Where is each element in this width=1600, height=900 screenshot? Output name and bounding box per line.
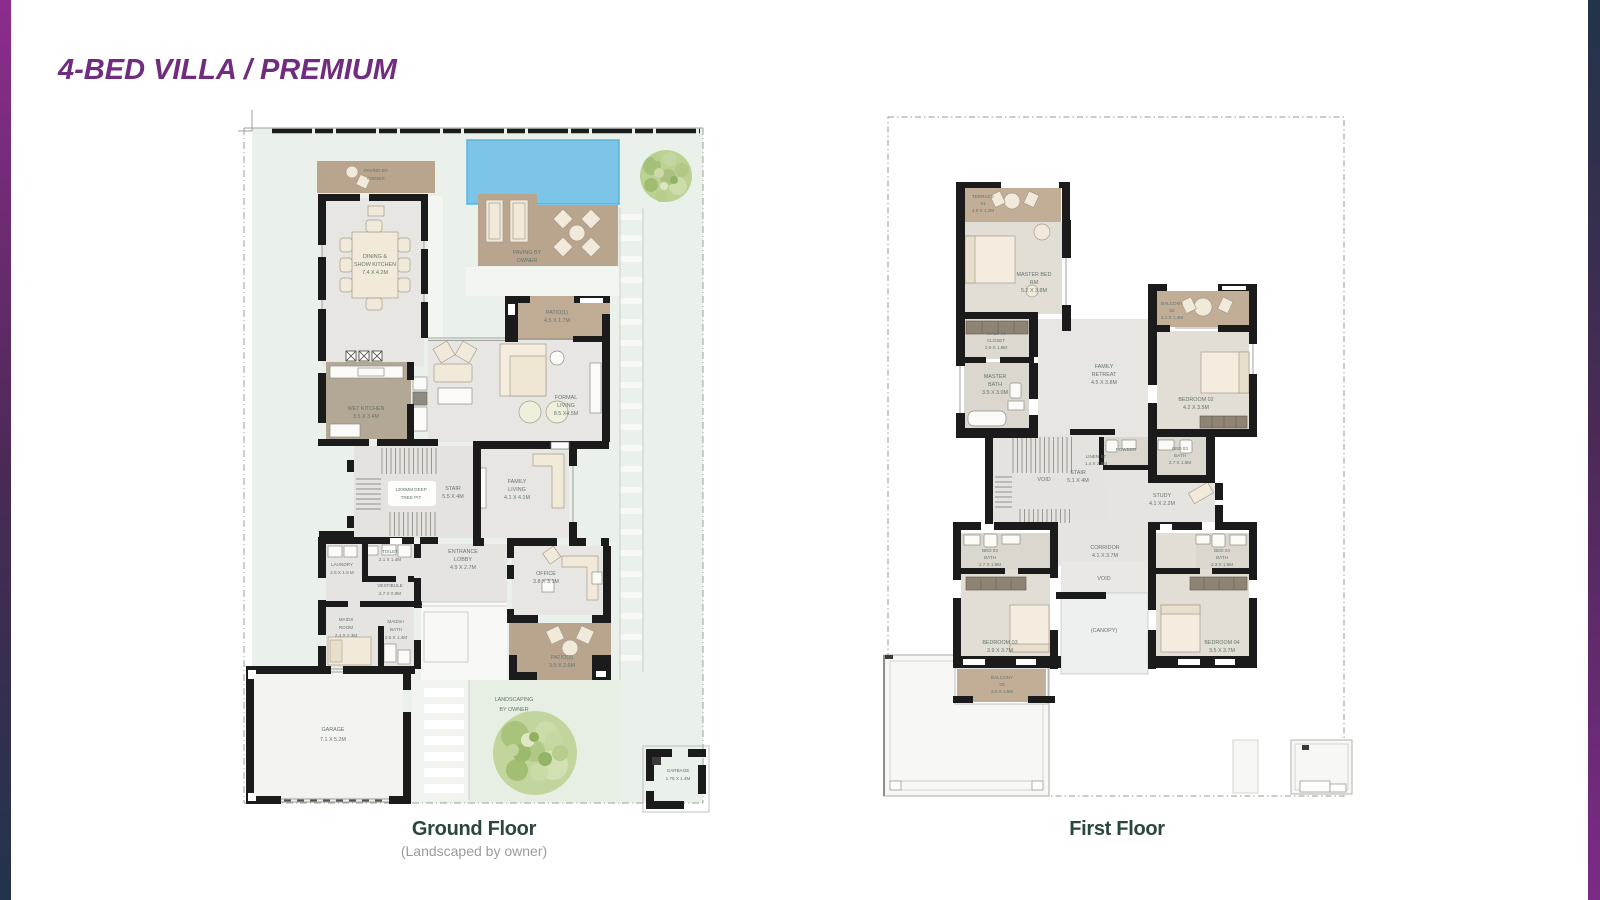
svg-text:VOID: VOID bbox=[1037, 477, 1050, 483]
svg-text:PAVING BY: PAVING BY bbox=[364, 168, 388, 173]
svg-text:OFFICE: OFFICE bbox=[536, 571, 556, 577]
svg-text:ENTRANCE: ENTRANCE bbox=[448, 549, 478, 555]
svg-text:7.4 X 4.2M: 7.4 X 4.2M bbox=[362, 270, 389, 276]
svg-text:7.1 X 5.2M: 7.1 X 5.2M bbox=[320, 737, 347, 743]
svg-text:GARBAGE: GARBAGE bbox=[667, 768, 690, 773]
svg-text:BEDROOM 03: BEDROOM 03 bbox=[982, 640, 1017, 646]
svg-text:1.75 X 1.4M: 1.75 X 1.4M bbox=[666, 776, 691, 781]
svg-text:TREE PIT: TREE PIT bbox=[401, 495, 422, 500]
svg-text:4.1 X 4.1M: 4.1 X 4.1M bbox=[504, 495, 531, 501]
svg-text:LINEN ST: LINEN ST bbox=[1086, 454, 1107, 459]
svg-text:MAIDS: MAIDS bbox=[339, 617, 354, 622]
svg-text:2.1 X 1.4M: 2.1 X 1.4M bbox=[379, 557, 401, 562]
svg-text:FAMILY: FAMILY bbox=[1095, 364, 1114, 370]
svg-text:DINING &: DINING & bbox=[363, 254, 387, 260]
svg-text:FORMAL: FORMAL bbox=[555, 395, 577, 401]
svg-text:3.5 X 3.4M: 3.5 X 3.4M bbox=[353, 414, 380, 420]
svg-text:BEDROOM 02: BEDROOM 02 bbox=[1178, 397, 1213, 403]
svg-text:3.9 X 3.7M: 3.9 X 3.7M bbox=[987, 648, 1014, 654]
svg-text:RETREAT: RETREAT bbox=[1092, 372, 1117, 378]
svg-text:4.1 X 2.2M: 4.1 X 2.2M bbox=[1149, 501, 1176, 507]
svg-text:5.5 X 4M: 5.5 X 4M bbox=[442, 494, 464, 500]
svg-text:BED 03: BED 03 bbox=[982, 548, 998, 553]
svg-text:RM: RM bbox=[1030, 280, 1039, 286]
svg-text:BED 03: BED 03 bbox=[1172, 446, 1188, 451]
svg-text:LIVING: LIVING bbox=[557, 403, 575, 409]
svg-text:1.4 X 2.5M: 1.4 X 2.5M bbox=[1085, 461, 1107, 466]
svg-text:WALK-IN: WALK-IN bbox=[987, 331, 1006, 336]
svg-text:02: 02 bbox=[1169, 308, 1175, 313]
svg-text:STAIR: STAIR bbox=[1070, 470, 1086, 476]
svg-text:3.5 X 3.0M: 3.5 X 3.0M bbox=[982, 390, 1009, 396]
svg-text:LIVING: LIVING bbox=[508, 487, 526, 493]
svg-text:8.5 X4.5M: 8.5 X4.5M bbox=[554, 411, 579, 417]
svg-text:4.5 X 3.8M: 4.5 X 3.8M bbox=[1091, 380, 1118, 386]
svg-text:2.7 X 1.6M: 2.7 X 1.6M bbox=[979, 562, 1001, 567]
svg-text:PATIO(2): PATIO(2) bbox=[551, 655, 573, 661]
svg-text:BED 04: BED 04 bbox=[1214, 548, 1230, 553]
svg-text:BY OWNER: BY OWNER bbox=[499, 707, 528, 713]
svg-text:4.1 X 3.7M: 4.1 X 3.7M bbox=[1092, 553, 1119, 559]
svg-text:STAIR: STAIR bbox=[445, 486, 461, 492]
svg-text:(CANOPY): (CANOPY) bbox=[1091, 628, 1118, 634]
svg-text:3.6 X 1.5M: 3.6 X 1.5M bbox=[991, 689, 1013, 694]
svg-text:BATH: BATH bbox=[1174, 453, 1186, 458]
svg-text:4.1 X 1.4M: 4.1 X 1.4M bbox=[1161, 315, 1183, 320]
svg-text:OWNER: OWNER bbox=[517, 258, 538, 264]
svg-text:PAVING BY: PAVING BY bbox=[513, 250, 542, 256]
svg-text:STUDY: STUDY bbox=[1153, 493, 1172, 499]
svg-text:4.2 X 3.5M: 4.2 X 3.5M bbox=[1183, 405, 1210, 411]
svg-text:01: 01 bbox=[980, 201, 986, 206]
svg-text:LOBBY: LOBBY bbox=[454, 557, 472, 563]
svg-text:4.9 X 2.7M: 4.9 X 2.7M bbox=[450, 565, 477, 571]
svg-text:CLOSET: CLOSET bbox=[987, 338, 1006, 343]
svg-text:MASTER: MASTER bbox=[984, 374, 1007, 380]
svg-text:BALCONY: BALCONY bbox=[991, 675, 1013, 680]
svg-text:1200MM DEEP: 1200MM DEEP bbox=[395, 487, 427, 492]
svg-text:LANDSCAPING: LANDSCAPING bbox=[495, 697, 534, 703]
svg-text:BATH: BATH bbox=[984, 555, 996, 560]
svg-text:BEDROOM 04: BEDROOM 04 bbox=[1204, 640, 1239, 646]
svg-text:PATIO(1): PATIO(1) bbox=[546, 310, 568, 316]
svg-text:BATH: BATH bbox=[1216, 555, 1228, 560]
svg-text:2.7 X 1.6M: 2.7 X 1.6M bbox=[1169, 460, 1191, 465]
svg-text:3.8 X 3.1M: 3.8 X 3.1M bbox=[533, 579, 560, 585]
svg-text:BATH: BATH bbox=[390, 627, 402, 632]
svg-text:2.6 X 1.8M: 2.6 X 1.8M bbox=[985, 345, 1007, 350]
svg-text:BATH: BATH bbox=[988, 382, 1002, 388]
svg-text:OWNER: OWNER bbox=[367, 176, 385, 181]
svg-text:FAMILY: FAMILY bbox=[508, 479, 527, 485]
svg-text:4.5 X 1.2M: 4.5 X 1.2M bbox=[972, 208, 994, 213]
svg-text:5.2 X 3.8M: 5.2 X 3.8M bbox=[1021, 288, 1048, 294]
svg-text:5.1 X 4M: 5.1 X 4M bbox=[1067, 478, 1089, 484]
svg-text:WET KITCHEN: WET KITCHEN bbox=[347, 406, 384, 412]
svg-text:ROOM: ROOM bbox=[339, 625, 353, 630]
svg-text:3.5 X 2.6M: 3.5 X 2.6M bbox=[549, 663, 576, 669]
svg-text:BALCONY: BALCONY bbox=[1161, 301, 1183, 306]
svg-text:LAUNDRY: LAUNDRY bbox=[331, 562, 353, 567]
svg-text:TOILET: TOILET bbox=[382, 549, 398, 554]
svg-text:VOID: VOID bbox=[1097, 576, 1110, 582]
svg-text:3.5 X 3.7M: 3.5 X 3.7M bbox=[1209, 648, 1236, 654]
svg-text:POWDER: POWDER bbox=[1116, 447, 1137, 452]
svg-text:MASTER BED: MASTER BED bbox=[1016, 272, 1051, 278]
svg-text:TERRACE: TERRACE bbox=[972, 194, 994, 199]
svg-text:VESTIBULE: VESTIBULE bbox=[377, 583, 402, 588]
svg-text:2.6 X 1.4M: 2.6 X 1.4M bbox=[385, 635, 407, 640]
svg-text:MAIDS+: MAIDS+ bbox=[387, 619, 405, 624]
svg-text:4.5 X 1.7M: 4.5 X 1.7M bbox=[544, 318, 571, 324]
svg-text:2.3 X 1.5M: 2.3 X 1.5M bbox=[1211, 562, 1233, 567]
svg-text:CORRIDOR: CORRIDOR bbox=[1090, 545, 1119, 551]
svg-text:2.4 X 2.3M: 2.4 X 2.3M bbox=[335, 633, 357, 638]
svg-text:GARAGE: GARAGE bbox=[321, 727, 344, 733]
svg-text:03: 03 bbox=[999, 682, 1005, 687]
svg-text:2.7 X 0.9M: 2.7 X 0.9M bbox=[379, 591, 401, 596]
svg-text:2.5 X 1.6 M: 2.5 X 1.6 M bbox=[330, 570, 354, 575]
svg-text:SHOW KITCHEN: SHOW KITCHEN bbox=[354, 262, 396, 268]
